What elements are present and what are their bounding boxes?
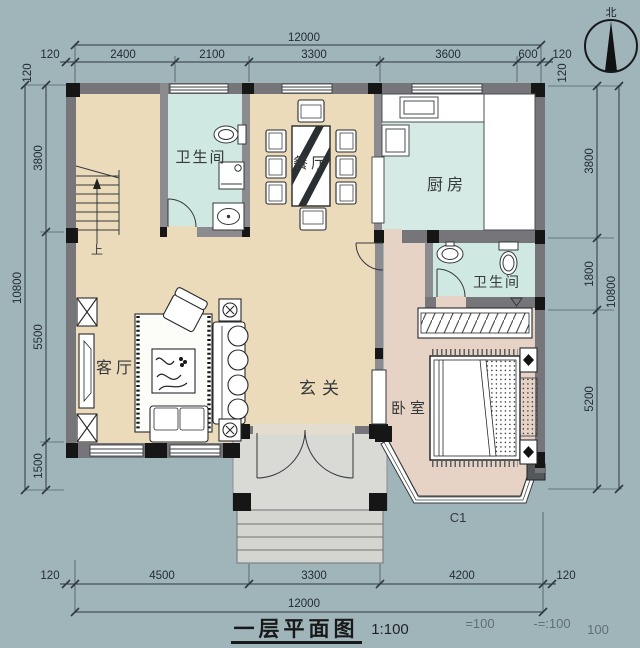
- dim-bottom-seg-0: 120: [40, 570, 59, 582]
- dim-bottom-seg-3: 4200: [449, 570, 475, 582]
- dim-top-rot-right: 120: [557, 63, 569, 82]
- ghost-text-1: =100: [465, 616, 494, 631]
- sofa: [213, 322, 248, 424]
- wardrobe: [418, 308, 532, 338]
- window-dining: [282, 84, 332, 93]
- wall-bath-top-left: [160, 83, 168, 237]
- toilet-icon: [499, 242, 518, 275]
- side-table-plant-top: [219, 299, 241, 321]
- dim-right-seg-0: 3800: [584, 148, 596, 174]
- washing-machine-icon: [219, 162, 244, 189]
- dim-right-seg-2: 5200: [584, 386, 596, 412]
- label-kitchen: 厨房: [427, 176, 467, 194]
- tv-cabinet: [79, 334, 94, 408]
- wall-dining-kitchen-upper: [374, 83, 382, 157]
- bed-headboard: [520, 378, 537, 436]
- dim-right-overall: 10800: [606, 276, 618, 308]
- window-bath-top: [170, 84, 228, 93]
- dim-top-rot-left: 120: [22, 63, 34, 82]
- dim-left-overall: 10800: [12, 272, 24, 304]
- bed: [430, 356, 520, 460]
- label-window-code: C1: [450, 510, 467, 525]
- ghost-text-3: 100: [587, 622, 609, 637]
- kitchen-counter-right: [484, 94, 535, 230]
- floor-plan-image: 12000 120 2400 2100 3300 3600 600 120 12…: [0, 0, 640, 648]
- floor-plan-svg: 12000 120 2400 2100 3300 3600 600 120 12…: [0, 0, 640, 648]
- label-stairs-up: 上: [91, 243, 103, 257]
- dim-top-seg-6: 120: [552, 49, 571, 61]
- dim-bottom-seg-1: 4500: [149, 570, 175, 582]
- window-kitchen: [412, 84, 482, 93]
- opening-bath-right-door: [436, 296, 466, 309]
- dim-left-seg-2: 1500: [33, 453, 45, 479]
- door-bedroom-leaf: [372, 370, 386, 424]
- porch-column-right: [369, 493, 387, 511]
- tv-unit: [77, 298, 97, 442]
- plan-scale: 1:100: [371, 621, 409, 638]
- label-bedroom: 卧室: [391, 400, 429, 417]
- toilet-icon: [214, 125, 246, 144]
- label-dining: 餐厅: [293, 155, 329, 172]
- wall-left: [66, 83, 76, 458]
- loveseat: [150, 406, 208, 442]
- label-bathroom-top: 卫生间: [175, 149, 226, 166]
- dim-top-seg-3: 3300: [301, 49, 327, 61]
- opening-bath-top-door: [167, 226, 197, 238]
- dim-top-seg-1: 2400: [110, 49, 136, 61]
- opening-dining-kitchen: [372, 157, 384, 223]
- dim-right-seg-1: 1800: [584, 261, 596, 287]
- dim-top-seg-5: 600: [518, 49, 537, 61]
- opening-entrance: [253, 424, 355, 435]
- floor-porch: [233, 431, 387, 510]
- plan-title: 一层平面图: [234, 618, 359, 641]
- opening-kitchen-door: [384, 229, 402, 244]
- compass-north-label: 北: [606, 6, 617, 19]
- dim-top-overall: 12000: [288, 32, 320, 44]
- dim-left-seg-1: 5500: [33, 324, 45, 350]
- dim-top-seg-4: 3600: [435, 49, 461, 61]
- porch-steps: [237, 510, 383, 563]
- window-living-left: [90, 445, 143, 456]
- side-table-plant-bottom: [219, 419, 241, 441]
- kitchen-sink: [400, 97, 438, 118]
- bedroom-set: [418, 308, 537, 464]
- sink-icon: [213, 203, 244, 230]
- dim-bottom-overall: 12000: [288, 598, 320, 610]
- dim-left-seg-0: 3800: [33, 145, 45, 171]
- label-hall: 玄关: [299, 379, 345, 398]
- label-living: 客厅: [96, 359, 136, 377]
- window-living-right: [170, 445, 220, 456]
- dim-top-seg-0: 120: [40, 49, 59, 61]
- nightstand-top: [520, 348, 537, 372]
- dim-top-seg-2: 2100: [199, 49, 225, 61]
- nightstand-bottom: [520, 440, 537, 464]
- ghost-text-2: -=:100: [533, 616, 570, 631]
- dim-bottom-seg-4: 120: [556, 570, 575, 582]
- dim-bottom-seg-2: 3300: [301, 570, 327, 582]
- label-bathroom-right: 卫生间: [473, 274, 521, 290]
- title-underline: [231, 641, 362, 644]
- porch-column-left: [233, 493, 251, 511]
- wall-bath-right-left: [425, 242, 433, 302]
